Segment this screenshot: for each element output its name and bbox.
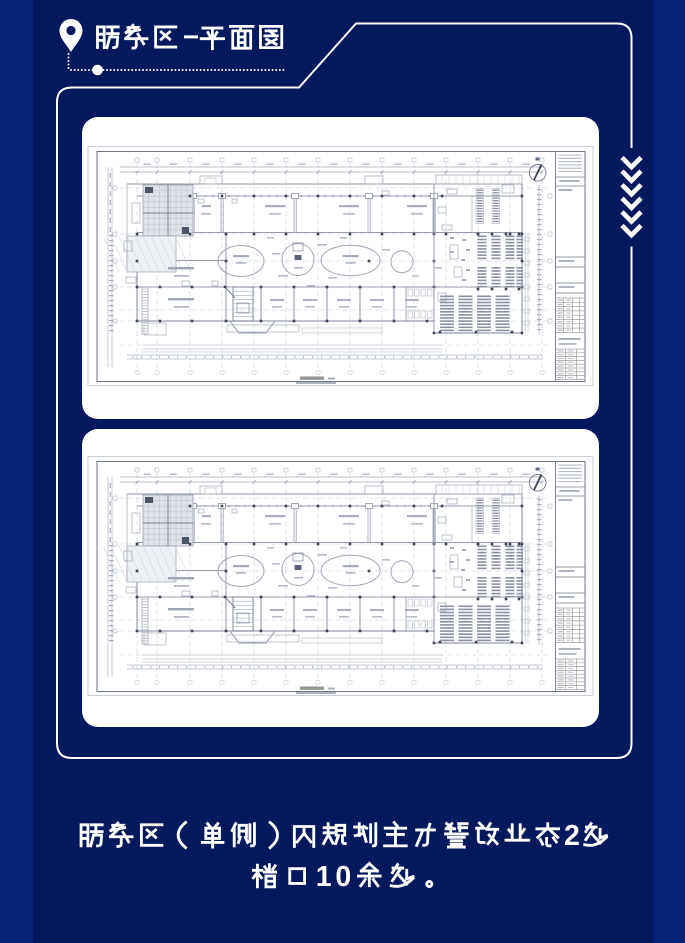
svg-text:0: 0 (335, 861, 351, 893)
svg-text:1: 1 (316, 861, 332, 893)
svg-text:2: 2 (564, 820, 580, 852)
